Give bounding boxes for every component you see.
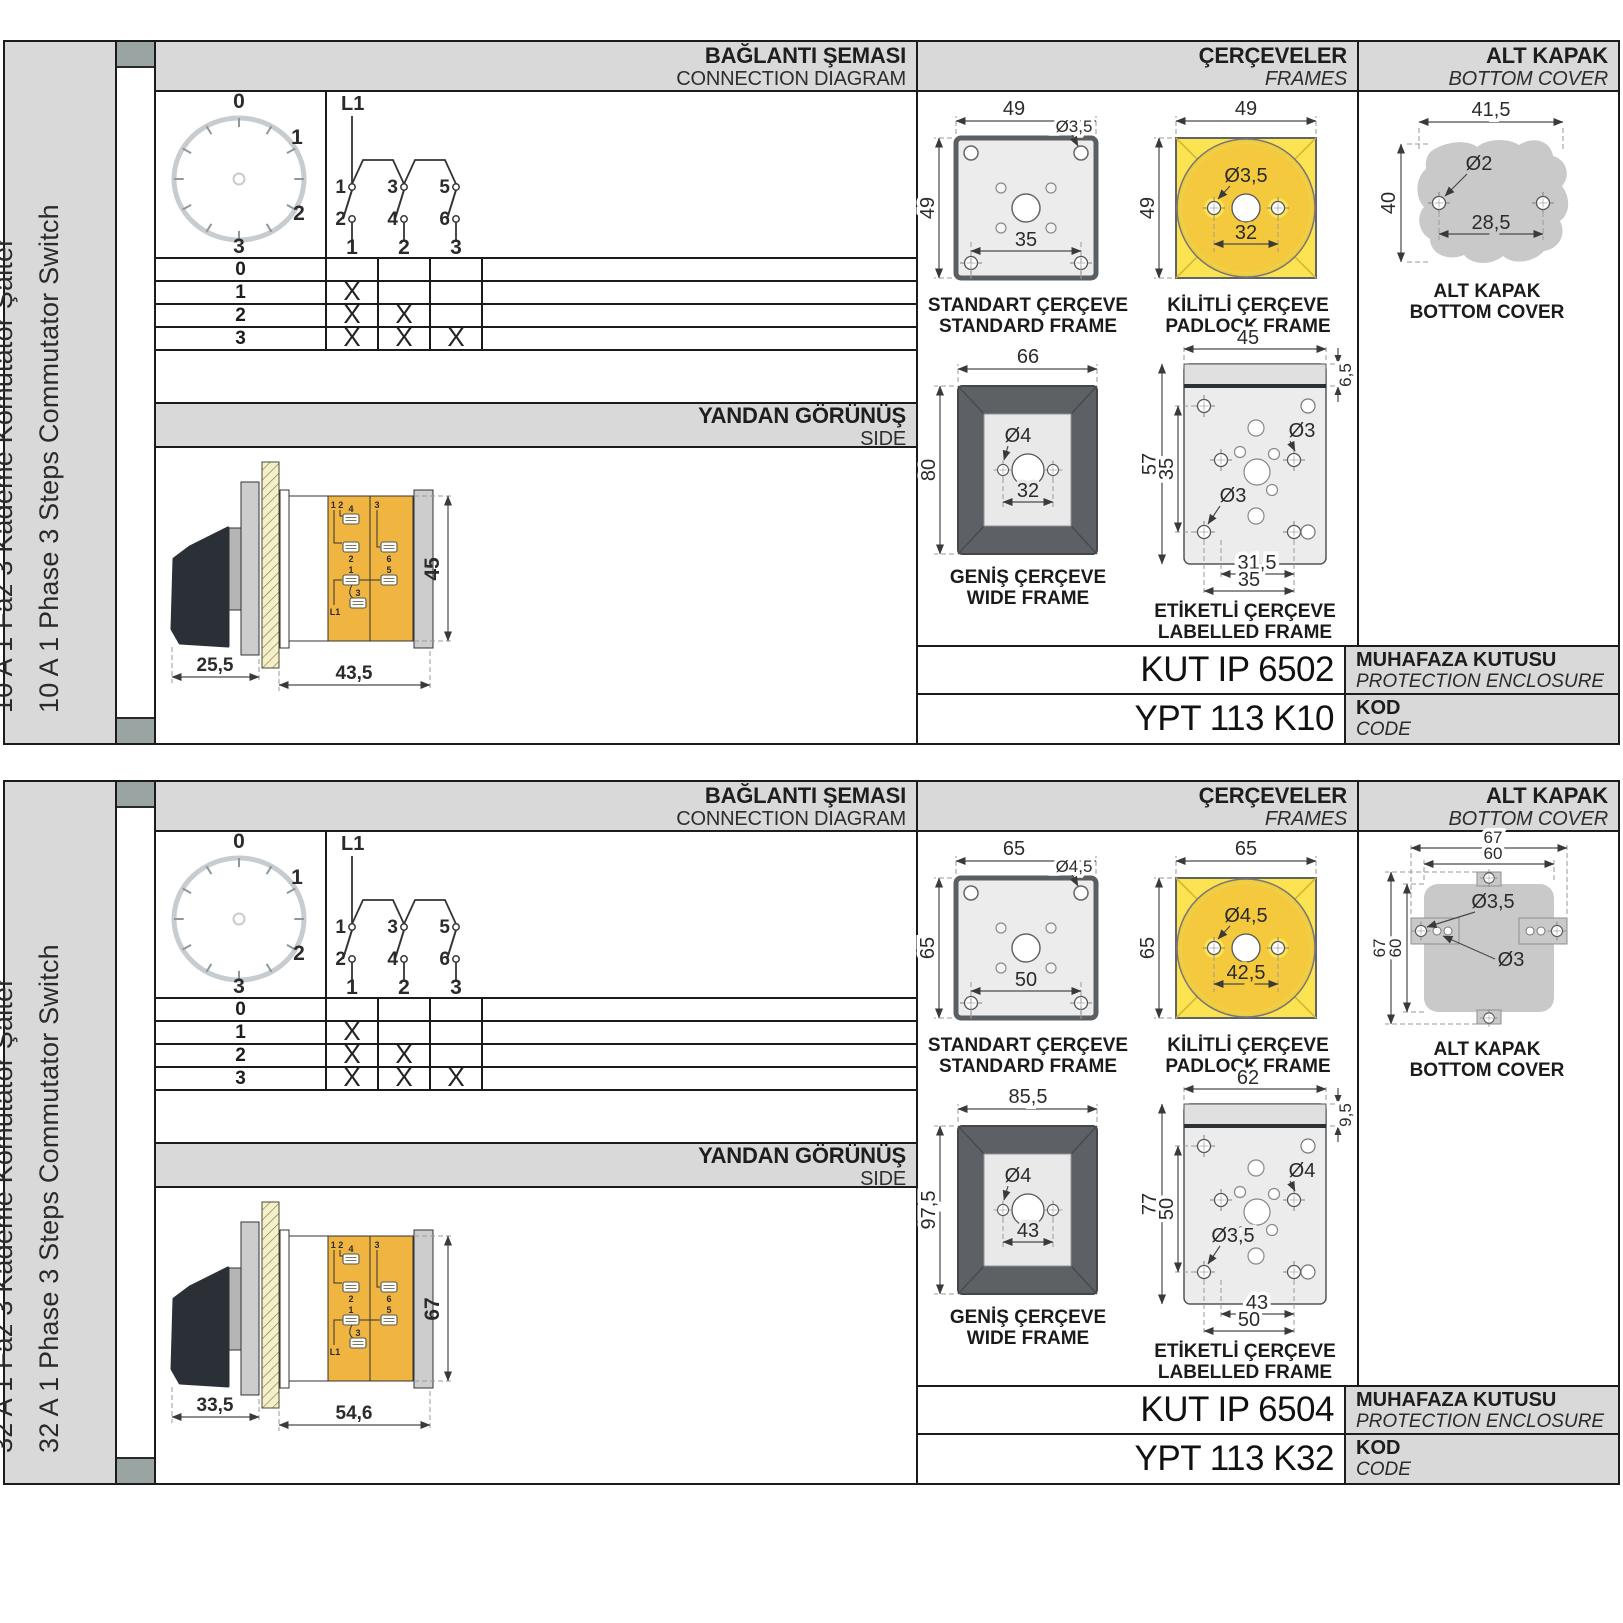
dim-pitch-b2: 35 xyxy=(1238,569,1260,591)
dim-hole: Ø3,5 xyxy=(1224,165,1267,187)
strip-marker-top xyxy=(117,42,154,68)
terminal-label-2: 2 xyxy=(348,554,353,564)
dim-width: 85,5 xyxy=(1009,1086,1048,1108)
contact-label-4: 4 xyxy=(387,209,398,230)
enclosure-row: KUT IP 6504 MUHAFAZA KUTUSU PROTECTION E… xyxy=(918,1387,1618,1435)
contact-label-1: 1 xyxy=(335,177,346,198)
dim-width: 66 xyxy=(1017,346,1039,368)
dim-height: 97,5 xyxy=(918,1191,940,1230)
shaft-hole xyxy=(1232,194,1260,222)
side-view-figure: 1 2 4 2 3 6 1 5 3 L1 67 33,5 54,6 xyxy=(168,1195,458,1445)
dial-pos-2: 2 xyxy=(293,202,305,225)
mark-cell xyxy=(431,259,483,280)
dial-pos-2: 2 xyxy=(293,942,305,965)
side-view-header: YANDAN GÖRÜNÜŞ SIDE xyxy=(156,402,916,448)
caption-tr: ALT KAPAK xyxy=(1369,1039,1605,1060)
standard-frame-figure: 49 Ø3,5 49 35 STANDART ÇERÇEVE STANDARD … xyxy=(922,94,1134,337)
table-row: 3 X X X xyxy=(156,328,916,351)
shaft-hole xyxy=(1012,194,1040,222)
frames-title-tr: ÇERÇEVELER xyxy=(918,784,1347,808)
row-label: 0 xyxy=(156,999,327,1020)
terminal-label-6: 6 xyxy=(386,554,391,564)
binder-strip xyxy=(117,42,156,743)
mark-cell: X xyxy=(327,328,379,349)
switch-handle xyxy=(172,528,228,646)
dim-hole-right: Ø4 xyxy=(1289,1160,1316,1182)
side-title-en: SIDE xyxy=(156,1168,906,1190)
mounting-wall xyxy=(262,462,279,668)
contact-label-2: 2 xyxy=(335,949,346,970)
schematic-figure: L1 1 3 5 2 4 6 1 2 xyxy=(327,832,918,997)
switch-handle xyxy=(172,1268,228,1386)
frames-header: ÇERÇEVELER FRAMES xyxy=(918,782,1357,832)
row-label: 1 xyxy=(156,282,327,303)
step-table: 0 1 X 2 X X 3 X xyxy=(156,257,916,351)
side-title-tr: YANDAN GÖRÜNÜŞ xyxy=(156,1144,906,1168)
caption-en: LABELLED FRAME xyxy=(1136,1362,1354,1383)
contact-label-4: 4 xyxy=(387,949,398,970)
dim-width: 65 xyxy=(1003,838,1025,860)
caption-tr: KİLİTLİ ÇERÇEVE xyxy=(1142,1035,1354,1056)
product-name-tr: 10 A 1 Faz 3 Kademe Komütatör Şalter xyxy=(0,238,19,713)
dim-height: 40 xyxy=(1378,192,1400,214)
dial-pos-3: 3 xyxy=(233,975,245,998)
enclosure-code: KUT IP 6502 xyxy=(918,647,1344,693)
mark-cell xyxy=(379,259,431,280)
table-row: 2 X X xyxy=(156,305,916,328)
contact-label-3: 3 xyxy=(387,177,398,198)
mark-cell xyxy=(431,999,483,1020)
schematic-feed-label: L1 xyxy=(341,833,364,855)
terminal-label-1: 1 xyxy=(348,1305,353,1315)
strip-marker-bottom xyxy=(117,1457,154,1483)
dim-hole: Ø3,5 xyxy=(1056,117,1093,136)
product-name-en: 32 A 1 Phase 3 Steps Commutator Switch xyxy=(34,944,65,1453)
code-rows: KUT IP 6504 MUHAFAZA KUTUSU PROTECTION E… xyxy=(918,1385,1618,1483)
caption-en: LABELLED FRAME xyxy=(1136,622,1354,643)
mark-cell: X xyxy=(379,328,431,349)
dim-height: 65 xyxy=(1137,937,1159,959)
switch-collar xyxy=(289,496,328,641)
labelled-frame-figure: 45 6,5 57 35 Ø3 Ø3 31,5 35 xyxy=(1136,334,1354,643)
terminal-label-2: 2 xyxy=(348,1294,353,1304)
dim-height: 67 xyxy=(421,1297,444,1320)
binder-strip xyxy=(117,782,156,1483)
mark-cell: X xyxy=(431,1068,483,1089)
code-label-en: CODE xyxy=(1356,1459,1618,1480)
terminal-label-3: 3 xyxy=(355,588,360,598)
frames-column: ÇERÇEVELER FRAMES 65 Ø4,5 65 xyxy=(918,782,1359,1385)
terminal-label-3top: 3 xyxy=(374,500,379,510)
enclosure-label-tr: MUHAFAZA KUTUSU xyxy=(1356,649,1618,671)
cover-column: ALT KAPAK BOTTOM COVER ALT KAPAK xyxy=(1359,782,1618,1385)
mark-cell: X xyxy=(327,1068,379,1089)
enclosure-label-en: PROTECTION ENCLOSURE xyxy=(1356,671,1618,692)
mark-cell: X xyxy=(431,328,483,349)
connection-header: BAĞLANTI ŞEMASI CONNECTION DIAGRAM xyxy=(156,782,916,832)
dim-pitch-v: 35 xyxy=(1156,458,1178,480)
terminal-label-L1: L1 xyxy=(330,607,341,617)
table-row: 1 X xyxy=(156,1022,916,1045)
contact-label-1: 1 xyxy=(335,917,346,938)
dim-pitch-b2: 50 xyxy=(1238,1309,1260,1331)
mark-cell: X xyxy=(379,1068,431,1089)
dim-width: 45 xyxy=(1237,327,1259,349)
padlock-frame-figure: 65 65 Ø4,5 42,5 KİLİTLİ ÇERÇEVE PADLOCK … xyxy=(1142,834,1354,1077)
cover-title-en: BOTTOM COVER xyxy=(1359,808,1608,830)
schematic-figure: L1 1 3 5 2 4 6 1 2 xyxy=(327,92,918,257)
output-label-3: 3 xyxy=(450,976,462,999)
dim-width: 65 xyxy=(1235,838,1257,860)
dim-hole-left: Ø3 xyxy=(1220,485,1247,507)
code-label: KOD CODE xyxy=(1344,1435,1618,1483)
caption-en: BOTTOM COVER xyxy=(1369,1060,1605,1081)
dim-hole: Ø4 xyxy=(1005,1165,1032,1187)
terminal-label-L1: L1 xyxy=(330,1347,341,1357)
step-table: 0 1 X 2 X X 3 X xyxy=(156,997,916,1091)
dim-hole2: Ø3 xyxy=(1498,949,1525,971)
dim-hole: Ø4 xyxy=(1005,425,1032,447)
caption-tr: STANDART ÇERÇEVE xyxy=(922,295,1134,316)
labelled-frame-figure: 62 9,5 77 50 Ø4 Ø3,5 43 50 xyxy=(1136,1074,1354,1383)
dim-pitch: 50 xyxy=(1015,969,1037,991)
output-label-2: 2 xyxy=(398,976,410,999)
shaft-hole xyxy=(1012,934,1040,962)
terminal-label-4: 4 xyxy=(348,1244,353,1254)
dial-figure: 0 1 2 3 xyxy=(156,92,327,257)
code-label: KOD CODE xyxy=(1344,695,1618,743)
product-block: 32 A 1 Faz 3 Kademe Komütatör Şalter 32 … xyxy=(3,780,1620,1485)
dial-pos-3: 3 xyxy=(233,235,245,258)
contact-label-5: 5 xyxy=(439,177,450,198)
contact-label-3: 3 xyxy=(387,917,398,938)
connection-title-tr: BAĞLANTI ŞEMASI xyxy=(156,44,906,68)
terminal-label-5: 5 xyxy=(386,1305,391,1315)
product-side-panel: 32 A 1 Faz 3 Kademe Komütatör Şalter 32 … xyxy=(5,782,117,1483)
dim-pitch: 28,5 xyxy=(1472,212,1511,234)
row-label: 0 xyxy=(156,259,327,280)
terminal-label-1: 1 xyxy=(348,565,353,575)
output-label-1: 1 xyxy=(346,236,358,259)
row-label: 1 xyxy=(156,1022,327,1043)
dim-body: 54,6 xyxy=(336,1403,373,1424)
product-name-tr: 32 A 1 Faz 3 Kademe Komütatör Şalter xyxy=(0,978,19,1453)
dim-h2: 60 xyxy=(1386,939,1405,958)
frames-title-en: FRAMES xyxy=(918,808,1347,830)
front-bezel xyxy=(241,482,259,655)
contact-label-6: 6 xyxy=(439,209,450,230)
dim-hole: Ø4,5 xyxy=(1056,857,1093,876)
dim-pitch: 43 xyxy=(1017,1220,1039,1242)
terminal-label-12: 1 2 xyxy=(331,500,344,510)
standard-frame-figure: 65 Ø4,5 65 50 STANDART ÇERÇEVE STANDARD … xyxy=(922,834,1134,1077)
dim-front: 25,5 xyxy=(197,655,234,676)
enclosure-row: KUT IP 6502 MUHAFAZA KUTUSU PROTECTION E… xyxy=(918,647,1618,695)
dim-height: 45 xyxy=(421,557,444,581)
dim-height: 49 xyxy=(917,197,939,219)
switch-collar xyxy=(289,1236,328,1381)
dim-pitch: 32 xyxy=(1235,222,1257,244)
cover-title-tr: ALT KAPAK xyxy=(1359,44,1608,68)
terminal-label-4: 4 xyxy=(348,504,353,514)
bottom-cover-figure: 67 60 67 60 Ø3,5 Ø3 ALT KAPAK BOTTOM COV… xyxy=(1369,832,1605,1081)
dial-figure: 0 1 2 3 xyxy=(156,832,327,997)
strip-marker-top xyxy=(117,782,154,808)
caption-tr: KİLİTLİ ÇERÇEVE xyxy=(1142,295,1354,316)
terminal-label-3: 3 xyxy=(355,1328,360,1338)
dim-width: 41,5 xyxy=(1472,99,1511,121)
enclosure-code: KUT IP 6504 xyxy=(918,1387,1344,1433)
dim-hole-left: Ø3,5 xyxy=(1211,1225,1254,1247)
caption-en: BOTTOM COVER xyxy=(1373,302,1601,323)
label-strip xyxy=(1184,364,1326,386)
dial-pos-0: 0 xyxy=(233,90,245,113)
caption-tr: ALT KAPAK xyxy=(1373,281,1601,302)
terminal-label-3top: 3 xyxy=(374,1240,379,1250)
code-rows: KUT IP 6502 MUHAFAZA KUTUSU PROTECTION E… xyxy=(918,645,1618,743)
dim-pitch: 42,5 xyxy=(1227,962,1266,984)
frames-column: ÇERÇEVELER FRAMES 49 Ø3,5 49 xyxy=(918,42,1359,645)
shaft-hole xyxy=(1232,934,1260,962)
caption-tr: GENİŞ ÇERÇEVE xyxy=(922,567,1134,588)
caption-tr: STANDART ÇERÇEVE xyxy=(922,1035,1134,1056)
dim-hole: Ø4,5 xyxy=(1224,905,1267,927)
mark-cell xyxy=(431,282,483,303)
mark-cell xyxy=(379,999,431,1020)
caption-en: STANDARD FRAME xyxy=(922,1056,1134,1077)
dim-width: 49 xyxy=(1003,98,1025,120)
table-row: 0 xyxy=(156,257,916,282)
connection-column: BAĞLANTI ŞEMASI CONNECTION DIAGRAM 0 1 2… xyxy=(156,42,918,743)
dim-body: 43,5 xyxy=(336,663,373,684)
connection-title-en: CONNECTION DIAGRAM xyxy=(156,68,906,90)
terminal-label-5: 5 xyxy=(386,565,391,575)
cover-column: ALT KAPAK BOTTOM COVER 41,5 40 Ø2 28,5 xyxy=(1359,42,1618,645)
product-side-panel: 10 A 1 Faz 3 Kademe Komütatör Şalter 10 … xyxy=(5,42,117,743)
table-row: 2 X X xyxy=(156,1045,916,1068)
row-label: 2 xyxy=(156,305,327,326)
product-code: YPT 113 K10 xyxy=(918,695,1344,743)
bottom-cover-figure: 41,5 40 Ø2 28,5 ALT KAPAK BOTTOM COVER xyxy=(1373,100,1601,323)
enclosure-label-tr: MUHAFAZA KUTUSU xyxy=(1356,1389,1618,1411)
contact-label-2: 2 xyxy=(335,209,346,230)
front-bezel xyxy=(241,1222,259,1395)
caption-en: STANDARD FRAME xyxy=(922,316,1134,337)
dim-pitch: 32 xyxy=(1017,480,1039,502)
table-row: 0 xyxy=(156,997,916,1022)
catalog-sheet: 10 A 1 Faz 3 Kademe Komütatör Şalter 10 … xyxy=(0,0,1623,1623)
schematic-feed-label: L1 xyxy=(341,93,364,115)
dial-pos-1: 1 xyxy=(291,866,303,889)
product-block: 10 A 1 Faz 3 Kademe Komütatör Şalter 10 … xyxy=(3,40,1620,745)
mark-cell xyxy=(431,1022,483,1043)
code-label-en: CODE xyxy=(1356,719,1618,740)
mounting-wall xyxy=(262,1202,279,1408)
code-row: YPT 113 K32 KOD CODE xyxy=(918,1435,1618,1483)
connection-title-en: CONNECTION DIAGRAM xyxy=(156,808,906,830)
dim-width: 62 xyxy=(1237,1067,1259,1089)
dim-height: 80 xyxy=(918,459,940,481)
connection-title-tr: BAĞLANTI ŞEMASI xyxy=(156,784,906,808)
code-label-tr: KOD xyxy=(1356,1437,1618,1459)
dim-strip: 9,5 xyxy=(1336,1103,1355,1127)
dial-pos-1: 1 xyxy=(291,126,303,149)
code-label-tr: KOD xyxy=(1356,697,1618,719)
output-label-3: 3 xyxy=(450,236,462,259)
cover-header: ALT KAPAK BOTTOM COVER xyxy=(1359,42,1618,92)
dim-height: 49 xyxy=(1137,197,1159,219)
contact-label-6: 6 xyxy=(439,949,450,970)
row-label: 3 xyxy=(156,328,327,349)
enclosure-label: MUHAFAZA KUTUSU PROTECTION ENCLOSURE xyxy=(1344,1387,1618,1433)
product-name-en: 10 A 1 Phase 3 Steps Commutator Switch xyxy=(34,204,65,713)
dim-strip: 6,5 xyxy=(1336,363,1355,387)
dim-pitch-v: 50 xyxy=(1156,1198,1178,1220)
row-label: 3 xyxy=(156,1068,327,1089)
terminal-label-12: 1 2 xyxy=(331,1240,344,1250)
caption-tr: ETİKETLİ ÇERÇEVE xyxy=(1136,1341,1354,1362)
caption-en: WIDE FRAME xyxy=(922,588,1134,609)
product-code: YPT 113 K32 xyxy=(918,1435,1344,1483)
enclosure-label-en: PROTECTION ENCLOSURE xyxy=(1356,1411,1618,1432)
dim-height: 65 xyxy=(917,937,939,959)
frames-header: ÇERÇEVELER FRAMES xyxy=(918,42,1357,92)
enclosure-label: MUHAFAZA KUTUSU PROTECTION ENCLOSURE xyxy=(1344,647,1618,693)
frames-title-en: FRAMES xyxy=(918,68,1347,90)
side-view-header: YANDAN GÖRÜNÜŞ SIDE xyxy=(156,1142,916,1188)
table-row: 1 X xyxy=(156,282,916,305)
code-row: YPT 113 K10 KOD CODE xyxy=(918,695,1618,743)
wide-frame-figure: Ø4 32 66 80 GENİŞ ÇERÇEVE WIDE FRAME xyxy=(922,350,1134,609)
dial-pos-0: 0 xyxy=(233,830,245,853)
side-title-tr: YANDAN GÖRÜNÜŞ xyxy=(156,404,906,428)
cover-title-en: BOTTOM COVER xyxy=(1359,68,1608,90)
wide-frame-figure: Ø4 43 85,5 97,5 GENİŞ ÇERÇEVE WIDE FRAME xyxy=(922,1090,1134,1349)
dim-hole: Ø2 xyxy=(1466,153,1493,175)
dim-pitch: 35 xyxy=(1015,229,1037,251)
caption-en: WIDE FRAME xyxy=(922,1328,1134,1349)
caption-tr: ETİKETLİ ÇERÇEVE xyxy=(1136,601,1354,622)
dim-hole-right: Ø3 xyxy=(1289,420,1316,442)
dim-front: 33,5 xyxy=(197,1395,234,1416)
output-label-2: 2 xyxy=(398,236,410,259)
strip-marker-bottom xyxy=(117,717,154,743)
row-label: 2 xyxy=(156,1045,327,1066)
table-row: 3 X X X xyxy=(156,1068,916,1091)
connection-column: BAĞLANTI ŞEMASI CONNECTION DIAGRAM 0 1 2… xyxy=(156,782,918,1483)
side-view-figure: 1 2 4 2 3 6 1 5 3 L1 45 25,5 43,5 xyxy=(168,455,458,705)
terminal-label-6: 6 xyxy=(386,1294,391,1304)
output-label-1: 1 xyxy=(346,976,358,999)
caption-tr: GENİŞ ÇERÇEVE xyxy=(922,1307,1134,1328)
contact-label-5: 5 xyxy=(439,917,450,938)
dim-w2: 60 xyxy=(1484,844,1503,863)
cover-header: ALT KAPAK BOTTOM COVER xyxy=(1359,782,1618,832)
side-title-en: SIDE xyxy=(156,428,906,450)
frames-title-tr: ÇERÇEVELER xyxy=(918,44,1347,68)
connection-header: BAĞLANTI ŞEMASI CONNECTION DIAGRAM xyxy=(156,42,916,92)
cover-title-tr: ALT KAPAK xyxy=(1359,784,1608,808)
padlock-frame-figure: 49 49 Ø3,5 32 KİLİTLİ ÇERÇEVE PADLOCK FR… xyxy=(1142,94,1354,337)
dim-width: 49 xyxy=(1235,98,1257,120)
label-strip xyxy=(1184,1104,1326,1126)
dim-hole1: Ø3,5 xyxy=(1471,891,1514,913)
